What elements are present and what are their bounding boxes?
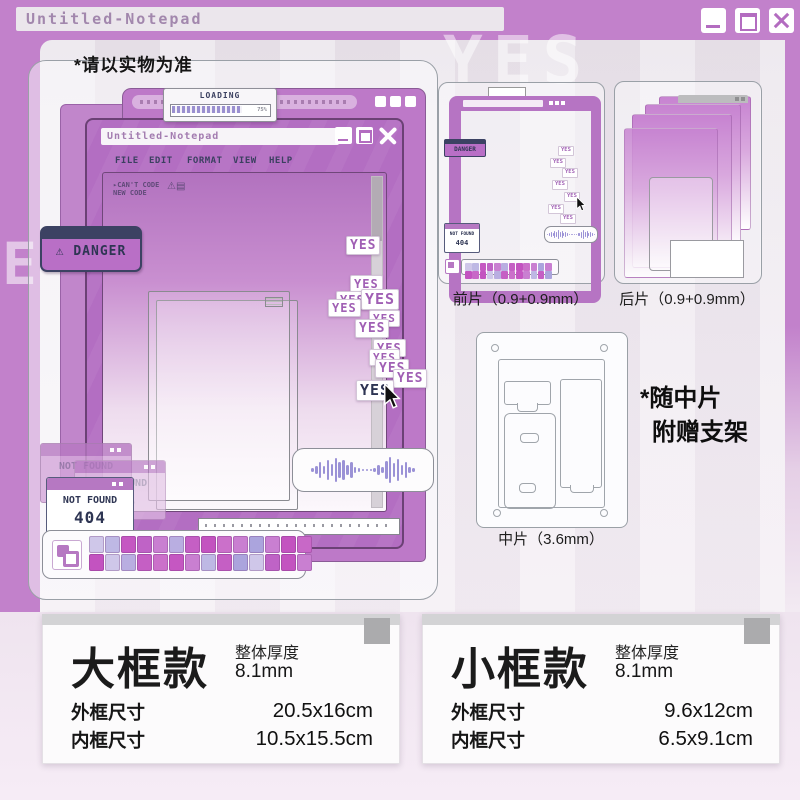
middle-piece-label: 中片（3.6mm）: [476, 528, 626, 549]
menu-view: VIEW: [233, 156, 257, 166]
spec-name: 大框款: [71, 633, 209, 697]
not-found-titlebar: [41, 444, 131, 456]
front-piece: DANGER NOT FOUND 404: [438, 82, 605, 284]
mini-close-icon: [405, 96, 416, 107]
thickness-value: 8.1mm: [615, 661, 673, 683]
inner-size-label: 内框尺寸: [71, 727, 145, 753]
yes-sticker-mini: YES: [548, 204, 564, 214]
thickness-label: 整体厚度: [235, 639, 299, 663]
yes-sticker-mini: YES: [550, 158, 566, 168]
not-found-window: NOT FOUND 404: [46, 477, 134, 537]
console-text: ▸CAN'T CODE NEW CODE: [113, 181, 159, 197]
mouse-cursor-icon: [576, 197, 586, 212]
front-piece-label: 前片（0.9+0.9mm）: [438, 288, 603, 309]
yes-sticker-mini: YES: [552, 180, 568, 190]
notepad-minimize-icon: [335, 127, 352, 144]
stand-cutout-notch: [517, 403, 538, 412]
thickness-value: 8.1mm: [235, 661, 293, 683]
spec-card-large: 大框款 整体厚度 8.1mm 外框尺寸 20.5x16cm 内框尺寸 10.5x…: [42, 614, 400, 764]
not-found-code: 404: [47, 508, 133, 527]
yes-sticker: YES: [355, 319, 389, 338]
front-danger-badge: DANGER: [444, 139, 486, 157]
front-not-found: NOT FOUND 404: [444, 223, 480, 253]
yes-sticker-mini: YES: [558, 146, 574, 156]
menu-edit: EDIT: [149, 156, 173, 166]
stand-cutout-notch: [570, 485, 594, 493]
loading-label: LOADING: [164, 91, 276, 100]
card-corner-decoration: [364, 618, 390, 644]
palette-bar: [42, 530, 306, 579]
layers-icon: [52, 540, 82, 570]
front-titlebar: [463, 100, 543, 107]
yes-sticker: YES: [328, 299, 361, 317]
right-purple-strip: [785, 40, 800, 612]
slot-pill: [520, 433, 539, 443]
menu-file: FILE: [115, 156, 139, 166]
outer-size-label: 外框尺寸: [71, 699, 145, 725]
yes-sticker: YES: [346, 236, 380, 255]
yes-sticker-mini: YES: [562, 168, 578, 178]
not-found-text: NOT FOUND: [47, 495, 133, 506]
photo-slot: [148, 291, 290, 501]
stand-cutout-top: [504, 381, 551, 405]
spec-card-small: 小框款 整体厚度 8.1mm 外框尺寸 9.6x12cm 内框尺寸 6.5x9.…: [422, 614, 780, 764]
mini-maximize-icon: [390, 96, 401, 107]
notepad-title: Untitled-Notepad: [101, 128, 339, 145]
not-found-titlebar: [75, 461, 165, 473]
thickness-label: 整体厚度: [615, 639, 679, 663]
inner-size-value: 10.5x15.5cm: [256, 727, 373, 751]
color-palette-grid: [89, 536, 312, 571]
yes-sticker-mini: YES: [560, 214, 576, 224]
card-top-band: [42, 614, 400, 625]
loading-percent: 75%: [257, 107, 267, 113]
back-titlebar: [678, 95, 748, 103]
outer-size-label: 外框尺寸: [451, 699, 525, 725]
outer-size-value: 20.5x16cm: [273, 699, 373, 723]
close-icon: [769, 8, 794, 33]
menu-format: FORMAT: [187, 156, 223, 166]
back-piece: [614, 81, 762, 284]
waveform-icon: [293, 449, 433, 491]
mini-minimize-icon: [375, 96, 386, 107]
product-promo-image: YES E Untitled-Notepad *请以实物为准 Untitled-…: [0, 0, 800, 800]
back-bottom-sheet: [670, 240, 744, 278]
yes-sticker: YES: [361, 289, 399, 310]
danger-badge-bar: [42, 228, 140, 239]
danger-badge: ⚠ DANGER: [40, 226, 142, 272]
warning-triangle-icon: ⚠: [56, 244, 65, 259]
scrollbar-thumb: [372, 177, 382, 241]
loading-window: LOADING 75%: [163, 88, 277, 122]
maximize-icon: [735, 8, 760, 33]
front-palette: [461, 259, 559, 275]
back-piece-label: 后片（0.9+0.9mm）: [612, 288, 762, 309]
front-waveform: [544, 226, 598, 243]
warning-floppy-icons: ⚠▤: [167, 181, 185, 192]
card-corner-decoration: [744, 618, 770, 644]
mouse-cursor-icon: [383, 384, 401, 410]
stand-cutout-left: [504, 413, 556, 509]
loading-bar: 75%: [170, 104, 271, 117]
disclaimer-note: *请以实物为准: [74, 52, 193, 77]
card-top-band: [422, 614, 780, 625]
slot-pill: [519, 483, 536, 493]
stand-included-note: *随中片 附赠支架: [640, 382, 748, 450]
photo-slot-tag: [265, 297, 283, 307]
outer-size-value: 9.6x12cm: [664, 699, 753, 723]
menu-help: HELP: [269, 156, 293, 166]
inner-size-label: 内框尺寸: [451, 727, 525, 753]
loading-fill: [172, 106, 242, 113]
not-found-titlebar: [47, 478, 133, 490]
stand-cutout-right: [560, 379, 602, 488]
window-title: Untitled-Notepad: [16, 7, 504, 31]
front-layers-icon: [445, 259, 460, 274]
spec-name: 小框款: [451, 633, 589, 697]
middle-piece: [476, 332, 628, 528]
inner-size-value: 6.5x9.1cm: [658, 727, 753, 751]
audio-waveform-pill: [292, 448, 434, 492]
notepad-close-icon: [376, 124, 400, 148]
notepad-maximize-icon: [356, 127, 373, 144]
minimize-icon: [701, 8, 726, 33]
danger-label: ⚠ DANGER: [42, 244, 140, 259]
